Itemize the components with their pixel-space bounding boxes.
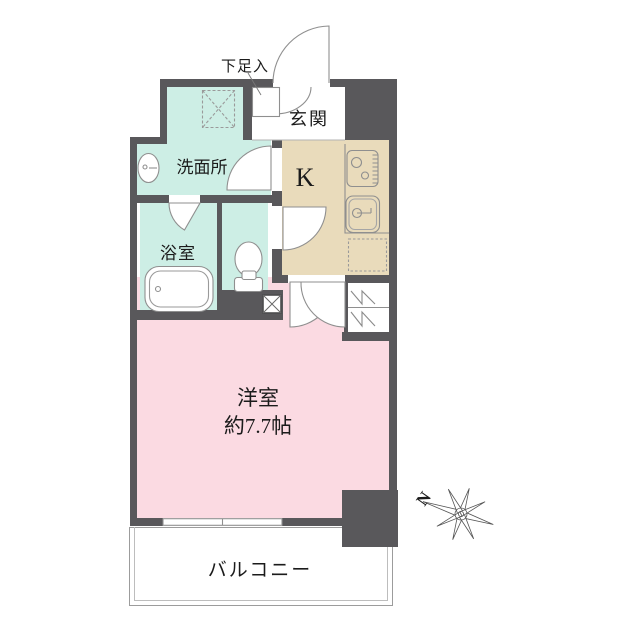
label-washroom: 洗面所 (162, 153, 242, 178)
plan-linework (0, 0, 640, 640)
washing-machine-icon (203, 91, 235, 128)
label-bathroom: 浴室 (143, 239, 213, 264)
bathtub-icon (145, 267, 213, 312)
pipe-space-icon (263, 295, 281, 313)
washbasin-icon (138, 154, 159, 183)
refrigerator-space-icon (349, 239, 387, 271)
kitchen-sink-icon (346, 196, 380, 233)
floor-plan: 下足入 玄関 洗面所 K 浴室 洋室 約7.7帖 バルコニー N (0, 0, 640, 640)
kitchen-counter-line (345, 144, 389, 233)
label-western-room-size: 約7.7帖 (158, 412, 358, 440)
toilet-door-arc-icon (283, 207, 326, 250)
stove-icon (347, 151, 378, 187)
label-western-room-name: 洋室 (158, 384, 358, 412)
label-shoe-cabinet: 下足入 (205, 55, 285, 76)
balcony-window-icon (163, 519, 282, 526)
toilet-icon (235, 242, 263, 292)
hanger-closet-icon (348, 291, 389, 326)
label-balcony: バルコニー (160, 555, 360, 582)
label-kitchen: K (285, 163, 325, 193)
label-entrance: 玄関 (274, 105, 344, 131)
bath-door-wedge-icon (169, 203, 200, 230)
